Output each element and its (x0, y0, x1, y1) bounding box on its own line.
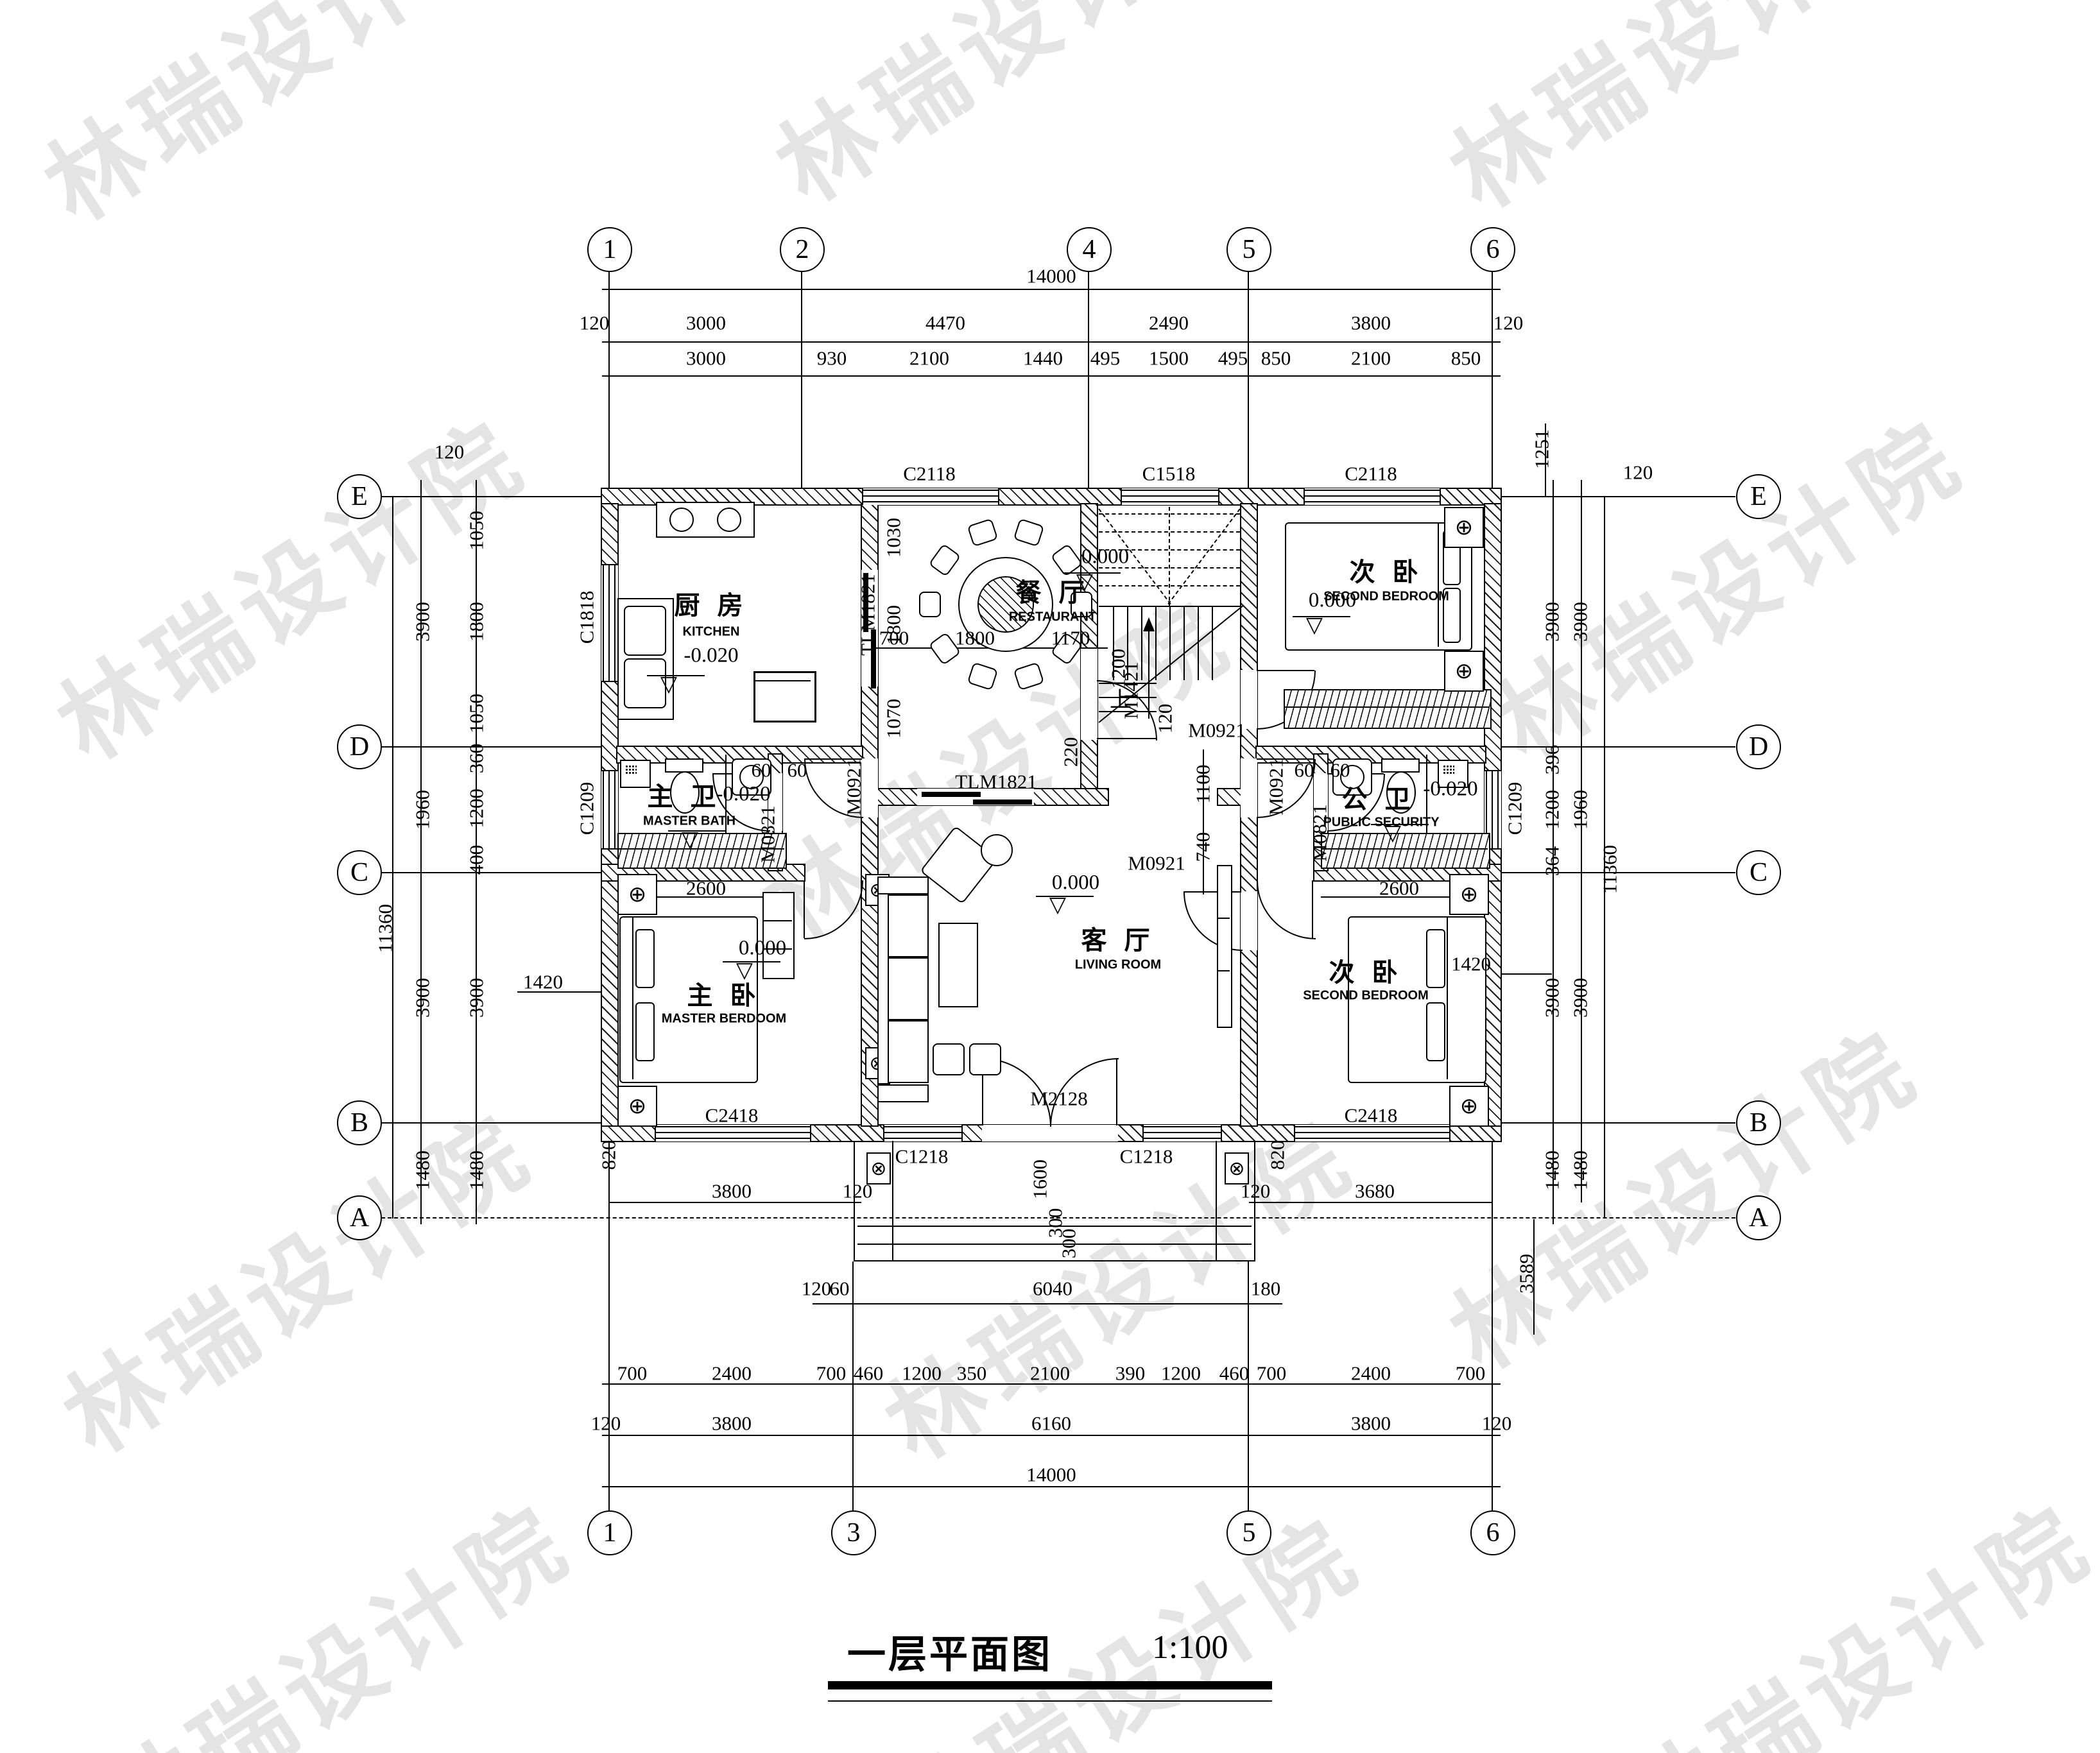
dim-label: M0821 (1310, 804, 1330, 862)
axis-bubble: B (1736, 1100, 1781, 1145)
toilet-tank (665, 758, 703, 773)
axis-bubble: A (337, 1195, 382, 1240)
dim-label: M0921 (1128, 853, 1185, 873)
dim-label: M0921 (844, 758, 864, 816)
shower-head (620, 760, 651, 788)
door-opening (1241, 758, 1257, 817)
window-C1218 (883, 1125, 963, 1142)
title-underline-thick (828, 1681, 1272, 1689)
window-C1218 (1142, 1125, 1222, 1142)
dim-label: 360 (467, 744, 486, 774)
level-value: 0.000 (1081, 545, 1129, 569)
dim-label: 1170 (1051, 628, 1090, 648)
watermark-text: 林瑞设计院 (72, 1465, 594, 1753)
dim-label: C2118 (903, 464, 956, 484)
drawing-line (813, 1303, 1282, 1304)
bedside-table: ⊕ (617, 874, 657, 915)
dim-label: 1800 (884, 605, 904, 645)
dim-label: 1200 (1542, 790, 1562, 830)
axis-bubble: 2 (780, 227, 825, 272)
door-swing-arc (1183, 892, 1243, 951)
dim-label: 3000 (686, 313, 726, 333)
dim-label: 14000 (1026, 266, 1076, 286)
dim-label: 1251 (1532, 429, 1552, 469)
door-opening (1241, 891, 1257, 950)
level-triangle-icon: ▽ (1306, 612, 1323, 638)
dim-label: 120 (1241, 1181, 1271, 1201)
dim-label: 1440 (1023, 348, 1063, 368)
drawing-line (602, 375, 1501, 377)
drawing-line (1492, 1142, 1493, 1510)
fridge-line (755, 680, 811, 681)
dim-label: M0821 (758, 805, 778, 863)
drawing-line (854, 1260, 1255, 1261)
door-leaf (1257, 670, 1314, 671)
dim-label: 390 (1115, 1364, 1146, 1383)
drawing-line (608, 272, 610, 488)
dim-label: 4470 (925, 313, 965, 333)
door-leaf (804, 880, 805, 938)
dim-label: 1800 (467, 602, 486, 642)
dim-label: 3900 (1542, 602, 1562, 642)
level-value: 0.000 (1052, 871, 1099, 895)
level-triangle-icon: ▽ (736, 957, 753, 983)
dim-label: 495 (1090, 348, 1121, 368)
dim-label: 60 (787, 760, 807, 780)
dim-label: 11360 (375, 904, 395, 953)
room-label-bedroom-br: 次 卧 (1329, 952, 1402, 989)
dim-label: 1050 (467, 511, 486, 551)
dim-label: 1200 (1108, 649, 1128, 688)
dim-label: 1800 (955, 628, 995, 648)
drawing-line (1155, 607, 1157, 680)
watermark-text: 林瑞设计院 (861, 1478, 1384, 1753)
window-C2118 (862, 488, 999, 505)
dim-label: 2100 (1030, 1364, 1070, 1383)
drawing-line (608, 1142, 610, 1510)
axis-bubble: E (337, 474, 382, 519)
dim-label: 1200 (902, 1364, 942, 1383)
level-triangle-icon: ▽ (660, 671, 677, 697)
axis-bubble: 6 (1470, 227, 1515, 272)
dim-label: 3000 (686, 348, 726, 368)
wardrobe (1284, 689, 1492, 729)
drawing-line (1198, 607, 1199, 680)
dresser-line (762, 920, 792, 921)
watermark-text: 林瑞设计院 (33, 1073, 556, 1480)
pillow (635, 1002, 655, 1061)
dim-label: 120 (1482, 1414, 1512, 1433)
drawing-line (801, 272, 802, 488)
dim-label: 3900 (1542, 978, 1562, 1018)
dim-label: 1480 (413, 1150, 433, 1190)
dim-label: 120 (1155, 704, 1175, 734)
door-leaf (1097, 738, 1156, 739)
dining-chair (967, 518, 998, 547)
dim-label: 3589 (1517, 1254, 1536, 1294)
side-stool (981, 834, 1013, 866)
dim-label: 1420 (523, 972, 563, 992)
dim-label: 1480 (467, 1150, 486, 1190)
dim-label: 700 (1257, 1364, 1287, 1383)
title-underline-thin (828, 1700, 1272, 1702)
drawing-line (602, 289, 1501, 290)
dim-label: 180 (1251, 1279, 1281, 1299)
level-value: 0.000 (739, 937, 786, 961)
headboard (632, 918, 633, 1079)
dim-label: C2418 (1345, 1106, 1398, 1125)
drawing-line (1248, 1261, 1249, 1510)
window-C2118 (1304, 488, 1441, 505)
dim-label: 3800 (712, 1414, 752, 1433)
dim-label: 3680 (1355, 1181, 1395, 1201)
dim-label: 850 (1451, 348, 1481, 368)
room-label-master-bath: 主 卫 (647, 776, 721, 813)
axis-bubble: 1 (587, 1510, 632, 1555)
pillow (1426, 1002, 1445, 1061)
dim-label: 120 (580, 313, 610, 333)
dim-label: M0921 (1188, 721, 1246, 740)
pillow (635, 929, 655, 988)
drawing-line (1501, 1122, 1735, 1124)
room-label-public-bath: 公 卫 (1341, 778, 1415, 816)
axis-bubble: 5 (1226, 1510, 1271, 1555)
dim-label: 3900 (413, 602, 433, 642)
dim-label: 3800 (1351, 1414, 1391, 1433)
drawing-line (1501, 973, 1552, 975)
dim-label: 3900 (1571, 978, 1590, 1018)
room-label-en-master-bedroom: MASTER BERDOOM (662, 1012, 786, 1027)
dim-label: C1218 (1120, 1147, 1173, 1167)
dim-label: 2400 (1351, 1364, 1391, 1383)
dim-label: C1209 (577, 782, 597, 835)
dim-label: 400 (467, 845, 486, 875)
dining-chair (919, 592, 941, 617)
dim-label: 6160 (1031, 1414, 1071, 1433)
dining-chair (1013, 518, 1045, 547)
dim-label: C1218 (895, 1147, 949, 1167)
watermark-text: 林瑞设计院 (746, 0, 1268, 229)
watermark-text: 林瑞设计院 (1593, 1465, 2100, 1753)
dim-label: 495 (1218, 348, 1248, 368)
axis-bubble: C (1736, 850, 1781, 895)
dim-label: 1480 (1571, 1150, 1590, 1190)
drawing-line (1501, 496, 1735, 497)
tv-cabinet (1217, 865, 1232, 1028)
dim-label: 120 (435, 442, 465, 462)
dim-label: 60 (1295, 760, 1314, 780)
dim-label: 120 (843, 1181, 873, 1201)
dim-label: 1600 (1030, 1159, 1050, 1199)
drawing-line (1148, 629, 1149, 719)
dim-label: 2400 (712, 1364, 752, 1383)
drawing-line (602, 341, 1501, 343)
sink-basin (624, 606, 666, 656)
level-value: -0.020 (1423, 778, 1477, 801)
pillow (1426, 929, 1445, 988)
level-value: 0.000 (1309, 589, 1356, 613)
axis-bubble: B (337, 1100, 382, 1145)
dresser (762, 892, 795, 979)
drawing-line (381, 496, 602, 497)
room-label-kitchen: 厨 房 (674, 585, 748, 622)
axis-bubble: C (337, 850, 382, 895)
door-swing-arc (1257, 880, 1316, 939)
fridge (753, 671, 816, 723)
dim-label: 2100 (909, 348, 949, 368)
stair-arrow-head (1143, 617, 1155, 631)
stair-dashed-diag (1167, 508, 1241, 604)
coffee-table (938, 923, 978, 1007)
dim-label: 460 (1219, 1364, 1250, 1383)
stove-burner (717, 508, 741, 532)
dim-label: M2128 (1030, 1089, 1088, 1109)
dim-label: 2600 (1379, 878, 1419, 898)
sofa-arm (877, 1084, 929, 1102)
headboard (1438, 524, 1439, 647)
dim-label: 120 (1493, 313, 1524, 333)
bedside-table: ⊕ (1444, 651, 1484, 692)
dim-label: 700 (816, 1364, 847, 1383)
dim-label: 1100 (1193, 765, 1213, 804)
dim-label: 120 (802, 1279, 832, 1299)
dim-label: 3900 (1571, 602, 1590, 642)
window-C1209 (601, 770, 618, 850)
room-label-en-dining: RESTAURANT (1009, 610, 1096, 625)
dim-label: 60 (1330, 760, 1350, 780)
dim-label: 1200 (467, 789, 486, 828)
dim-label: 396 (1542, 745, 1562, 775)
sofa-seat (888, 894, 929, 957)
sofa-seat (888, 957, 929, 1020)
drawing-line (1183, 607, 1185, 680)
window-C2418 (1294, 1125, 1450, 1142)
drawing-line (420, 480, 422, 1224)
window-C1818 (601, 564, 618, 682)
dim-label: 3900 (413, 978, 433, 1018)
wall-segment (1218, 789, 1241, 805)
dim-label: 11360 (1600, 845, 1620, 894)
wardrobe-rod (1321, 848, 1488, 850)
bedside-table: ⊕ (1444, 507, 1484, 548)
axis-bubble: 6 (1470, 1510, 1515, 1555)
dim-label: 850 (1261, 348, 1291, 368)
door-opening (982, 1125, 1118, 1142)
room-label-en-bedroom-br: SECOND BEDROOM (1303, 989, 1429, 1004)
room-label-living: 客 厅 (1081, 919, 1155, 957)
dim-label: 1420 (1451, 954, 1491, 974)
axis-bubble: E (1736, 474, 1781, 519)
room-label-en-kitchen: KITCHEN (683, 625, 740, 640)
bedside-table: ⊕ (1449, 874, 1489, 915)
stair-center-dashed (1169, 507, 1170, 607)
dining-chair (928, 543, 961, 576)
sliding-door-leaf (973, 800, 1032, 805)
sofa-arm (877, 877, 929, 894)
level-value: -0.020 (716, 783, 770, 807)
drawing-line (1501, 746, 1735, 748)
dim-label: M0921 (1266, 758, 1286, 816)
dim-label: 740 (1193, 832, 1213, 862)
door-leaf (1183, 891, 1241, 893)
dim-label: 2490 (1149, 313, 1189, 333)
page-title: 一层平面图 (847, 1623, 1053, 1679)
drawing-line (857, 1244, 1252, 1245)
dim-label: 700 (1456, 1364, 1486, 1383)
dim-label: 350 (957, 1364, 987, 1383)
stove-burner (669, 508, 694, 532)
dim-label: 700 (617, 1364, 648, 1383)
room-label-bedroom-tr: 次 卧 (1349, 551, 1423, 588)
dim-label: 上 (1110, 690, 1132, 712)
dim-label: C2418 (705, 1106, 759, 1125)
window-C2418 (655, 1125, 811, 1142)
dim-label: 3800 (1351, 313, 1391, 333)
dim-label: TLM1821 (955, 772, 1037, 792)
axis-bubble: A (1736, 1195, 1781, 1240)
level-triangle-icon: ▽ (682, 826, 698, 852)
drawing-line (381, 1122, 602, 1124)
dim-label: 60 (752, 760, 771, 780)
dim-label: 1030 (884, 518, 904, 558)
dim-label: 820 (599, 1140, 619, 1170)
floor-plan-canvas: 林瑞设计院林瑞设计院林瑞设计院林瑞设计院林瑞设计院林瑞设计院林瑞设计院林瑞设计院… (0, 0, 2100, 1753)
dim-label: 60 (830, 1279, 850, 1299)
dim-label: 300 (1059, 1229, 1079, 1259)
tv-shelf (1217, 970, 1230, 971)
door-opening (1081, 647, 1097, 740)
dim-label: 220 (1061, 737, 1081, 767)
dim-label: 2100 (1351, 348, 1391, 368)
dim-label: 2600 (686, 878, 726, 898)
dim-label: 930 (817, 348, 847, 368)
dim-label: C1518 (1142, 464, 1196, 484)
drawing-line (852, 1261, 854, 1510)
drawing-scale: 1:100 (1152, 1629, 1228, 1666)
drawing-line (1088, 272, 1089, 488)
dim-label: 460 (854, 1364, 884, 1383)
drawing-line (602, 1435, 1501, 1436)
dim-label: 1200 (1161, 1364, 1201, 1383)
axis-bubble: D (337, 724, 382, 769)
sofa-seat (888, 1020, 929, 1083)
dim-label: 6040 (1033, 1279, 1072, 1299)
dim-label: 820 (1268, 1140, 1287, 1170)
room-label-en-living: LIVING ROOM (1075, 958, 1161, 973)
axis-bubble: 1 (587, 227, 632, 272)
watermark-text: 林瑞设计院 (1420, 0, 1942, 235)
dim-label: 3800 (712, 1181, 752, 1201)
drawing-line (602, 1486, 1501, 1487)
axis-bubble: 4 (1067, 227, 1112, 272)
tv-shelf (1217, 918, 1230, 919)
dim-label: 1070 (884, 699, 904, 739)
bedside-table: ⊕ (617, 1086, 657, 1127)
door-leaf (1312, 880, 1313, 938)
drawing-line (381, 746, 602, 748)
dim-label: 14000 (1026, 1465, 1076, 1485)
drawing-line (1248, 272, 1249, 488)
wardrobe-rod (1284, 706, 1489, 708)
drawing-line (381, 872, 602, 873)
toilet-tank (1381, 758, 1420, 773)
dim-label: 364 (1542, 846, 1562, 877)
drawing-line (1212, 607, 1213, 680)
dim-label: 1500 (1149, 348, 1189, 368)
dim-label: C2118 (1345, 464, 1397, 484)
level-triangle-icon: ▽ (1076, 569, 1093, 594)
drawing-line (1492, 272, 1493, 488)
level-value: -0.020 (684, 644, 738, 668)
wardrobe (1321, 833, 1490, 869)
dim-label: 120 (1623, 463, 1653, 483)
dim-label: 1050 (467, 694, 486, 733)
door-leaf (1116, 1058, 1117, 1125)
dim-label: 1480 (1542, 1150, 1562, 1190)
headboard (1447, 918, 1448, 1079)
dim-label: C1209 (1505, 782, 1525, 835)
bedside-table: ⊕ (1449, 1086, 1489, 1127)
dim-label: 1960 (413, 790, 433, 830)
drawing-line (392, 496, 393, 1219)
watermark-text: 林瑞设计院 (14, 0, 537, 248)
drawing-line (1169, 607, 1171, 680)
axis-bubble: 5 (1226, 227, 1271, 272)
level-triangle-icon: ▽ (1384, 820, 1401, 846)
dim-label: 120 (591, 1414, 621, 1433)
dim-label: C1818 (577, 591, 597, 644)
dim-label: 1960 (1571, 790, 1590, 830)
window-C1518 (1121, 488, 1219, 505)
axis-bubble: D (1736, 724, 1781, 769)
level-triangle-icon: ▽ (1049, 892, 1066, 918)
stool (969, 1043, 1001, 1075)
stool (933, 1043, 965, 1075)
room-label-en-public-bath: PUBLIC SECURITY (1323, 816, 1439, 830)
drawing-line (1581, 480, 1582, 1202)
dim-label: 3900 (467, 978, 486, 1018)
axis-bubble: 3 (831, 1510, 876, 1555)
dim-label: TLM1821 (858, 574, 878, 655)
